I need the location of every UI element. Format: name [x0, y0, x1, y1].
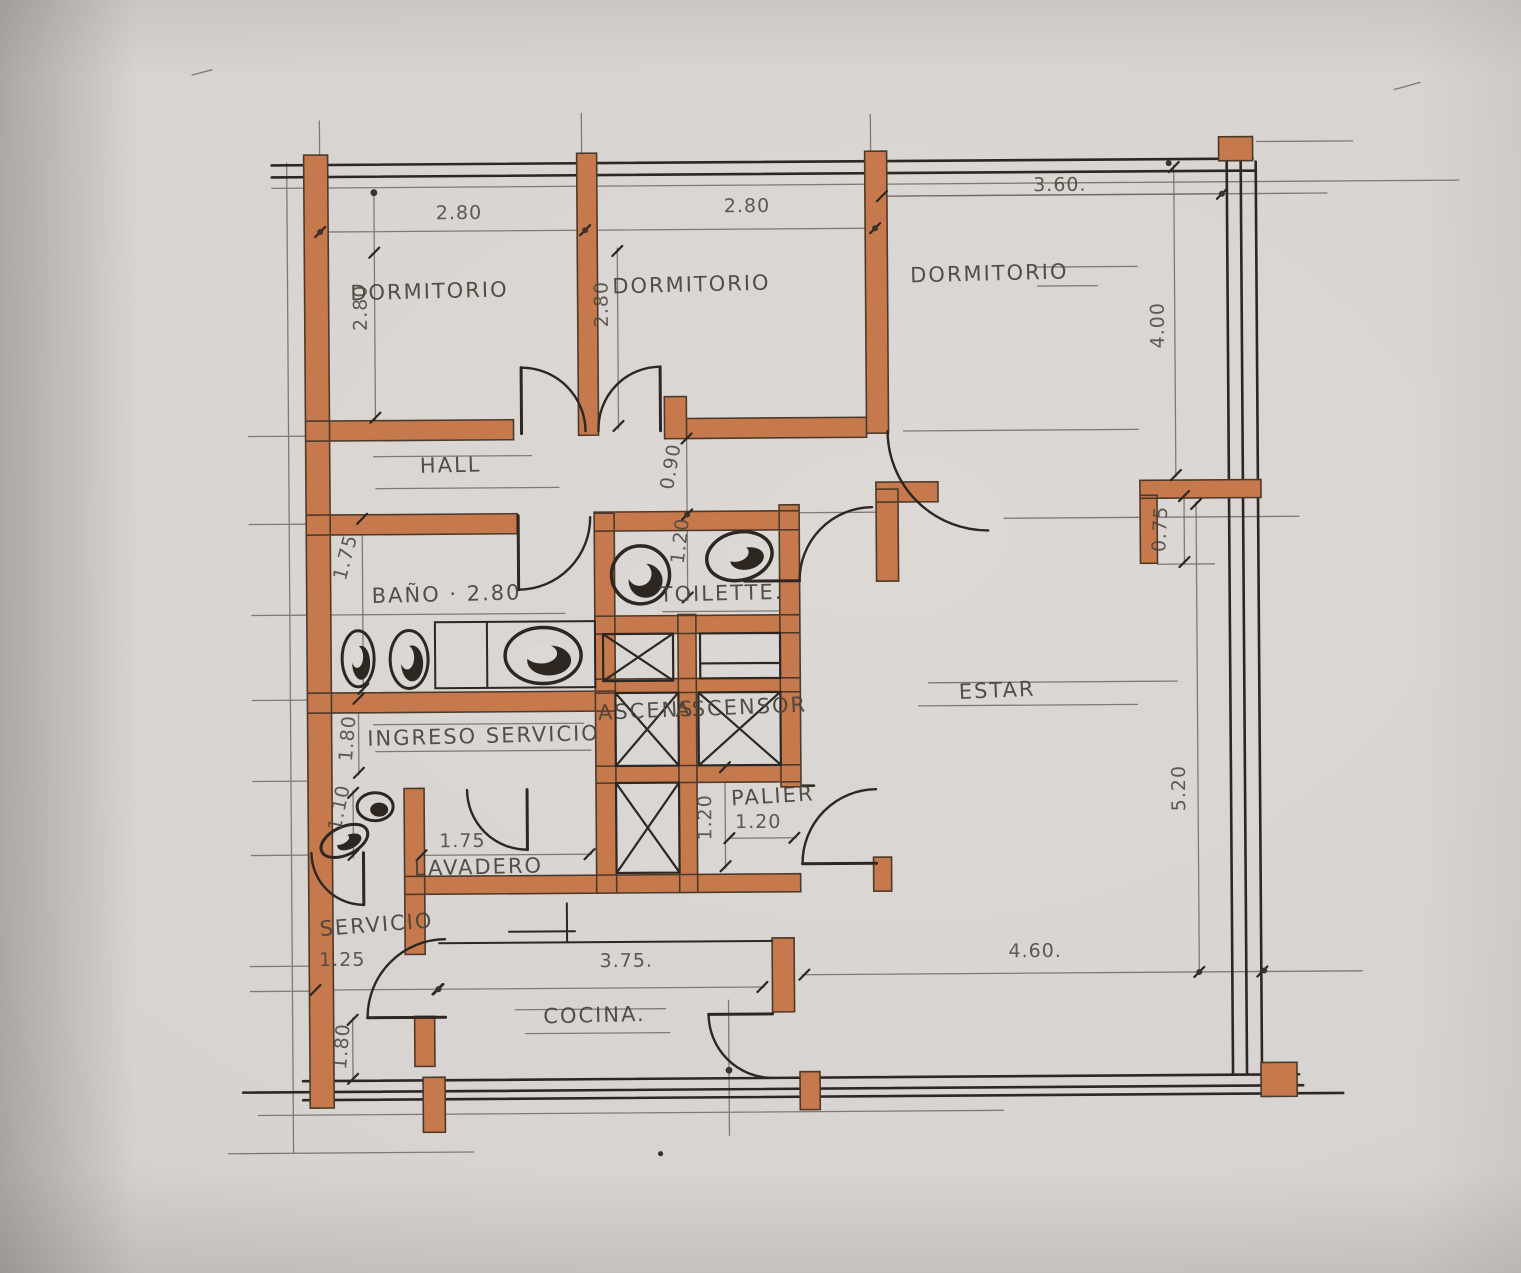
- plan-sketch: DORMITORIO DORMITORIO DORMITORIO HALL BA…: [192, 61, 1466, 1159]
- dim-dorm2-fondo: 2.80: [590, 281, 612, 327]
- floor-plan-photo: DORMITORIO DORMITORIO DORMITORIO HALL BA…: [0, 0, 1521, 1273]
- sink-fixture: [390, 630, 428, 688]
- dim-estar-ancho: 4.60.: [1008, 940, 1062, 962]
- kitchen-counter: [439, 902, 772, 943]
- room-label-lavadero: LAVADERO: [414, 853, 544, 880]
- room-label-ingreso-servicio: INGRESO SERVICIO: [367, 721, 600, 751]
- room-label-toilette: TOILETTE.: [658, 580, 783, 607]
- toilet-fixture: [357, 793, 393, 821]
- dim-lavadero-ancho: 1.75: [439, 830, 485, 852]
- dim-ingreso-fondo: 1.80: [335, 714, 361, 762]
- floor-plan-drawing: DORMITORIO DORMITORIO DORMITORIO HALL BA…: [0, 0, 1521, 1273]
- bidet-fixture: [702, 526, 777, 587]
- dim-top-dorm1: 2.80: [436, 202, 482, 224]
- dim-pasillo: 0.90: [656, 442, 685, 491]
- dim-retiro: 0.75: [1148, 505, 1172, 552]
- toilet-fixture: [505, 627, 581, 684]
- dim-cocina-ancho: 3.75.: [599, 950, 653, 972]
- dim-toilette-fondo: 1.20: [667, 517, 694, 566]
- dim-top-dorm2: 2.80: [724, 195, 770, 217]
- dim-estar-fondo: 5.20: [1168, 765, 1190, 811]
- room-label-hall: HALL: [420, 452, 482, 477]
- dim-servicio-ancho: 1.25: [319, 949, 365, 971]
- room-label-palier: PALIER: [730, 781, 815, 810]
- room-label-dormitorio-2: DORMITORIO: [612, 271, 771, 299]
- dim-top-dorm3: 3.60.: [1033, 174, 1087, 196]
- dim-palier-ancho: 1.20: [735, 811, 781, 833]
- dim-cocina-alto: 1.80: [329, 1022, 355, 1070]
- bath-vanity: [435, 621, 595, 688]
- room-label-dormitorio-3: DORMITORIO: [910, 259, 1069, 287]
- room-label-bano: BAÑO · 2.80: [371, 578, 521, 608]
- dim-bano-fondo: 1.75: [329, 532, 362, 582]
- dim-dorm1-fondo: 2.80: [350, 285, 372, 331]
- vanity-outline: [435, 621, 595, 688]
- dim-palier-fondo: 1.20: [694, 794, 716, 840]
- dim-dorm3-fondo: 4.00: [1147, 302, 1169, 348]
- room-label-cocina: COCINA.: [543, 1002, 646, 1028]
- room-label-estar: ESTAR: [958, 677, 1036, 704]
- room-label-dormitorio-1: DORMITORIO: [350, 277, 509, 305]
- sink-fixture: [342, 631, 374, 687]
